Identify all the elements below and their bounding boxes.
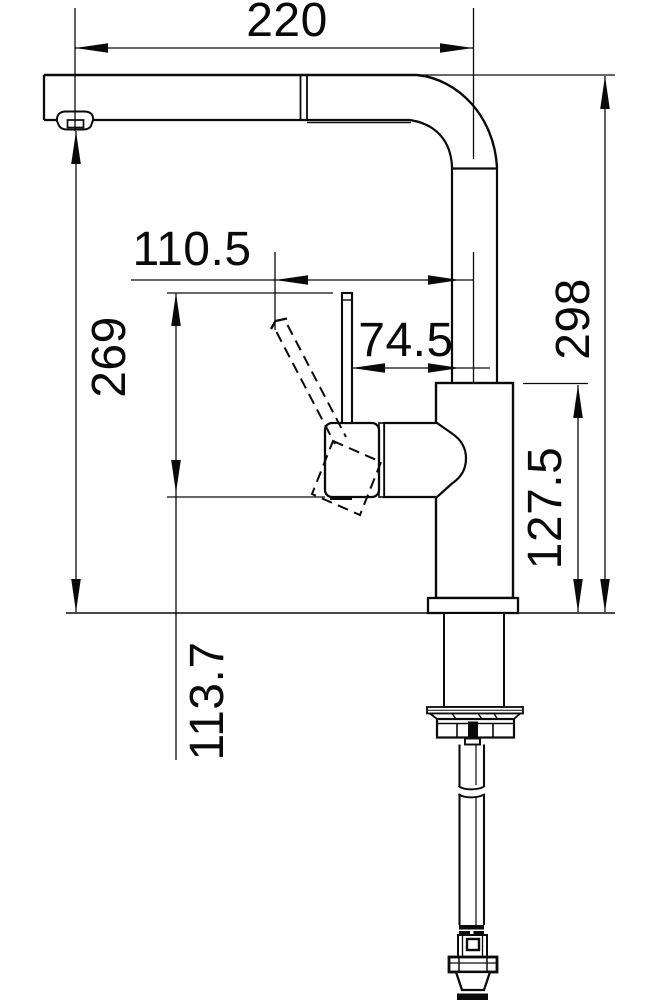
dim-label-lever-height: 113.7 <box>184 641 232 760</box>
dim-label-body-height: 127.5 <box>522 447 570 570</box>
faucet-body <box>436 383 513 598</box>
hose-end-fitting <box>449 925 497 1000</box>
base-flange <box>428 598 518 613</box>
mounting-nut <box>437 719 514 745</box>
spout-tube <box>44 75 497 167</box>
hose-break-symbol <box>459 786 486 789</box>
faucet-dimension-drawing: 220 110.5 74.5 269 113.7 127.5 298 <box>0 0 657 1000</box>
dim-label-lever-offset: 74.5 <box>358 317 453 365</box>
threaded-stud <box>468 722 478 739</box>
dim-label-total-height: 298 <box>550 278 598 360</box>
riser-pipe <box>452 167 497 383</box>
dim-label-lever-tip-offset: 110.5 <box>132 226 251 274</box>
lever-rod <box>342 293 352 423</box>
dim-label-outlet-height: 269 <box>86 316 134 398</box>
mounting-shank <box>444 613 504 707</box>
pull-out-hose <box>459 745 486 926</box>
spout-inner-curve <box>410 120 452 167</box>
lever-tip-cap <box>271 319 287 330</box>
mounting-washer <box>427 707 523 719</box>
faucet-outline <box>44 75 523 1000</box>
hose-coupling-nut <box>449 957 497 972</box>
dim-label-spout-reach: 220 <box>246 0 328 45</box>
spout-outer-curve <box>417 75 497 167</box>
